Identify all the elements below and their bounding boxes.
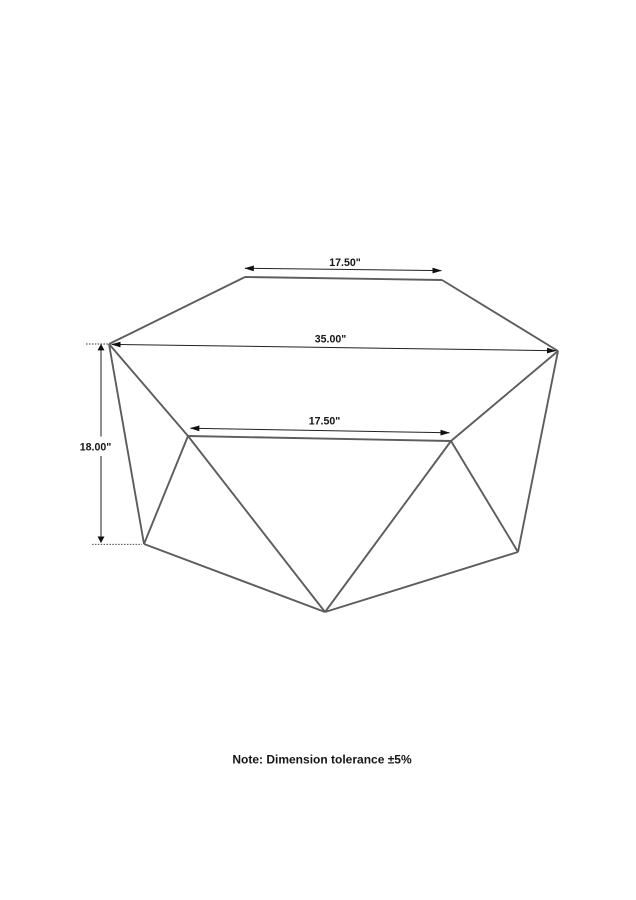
- svg-text:18.00": 18.00": [80, 442, 112, 454]
- svg-text:17.50": 17.50": [309, 416, 341, 428]
- svg-text:35.00": 35.00": [315, 334, 347, 346]
- svg-text:Note: Dimension tolerance ±5%: Note: Dimension tolerance ±5%: [232, 753, 412, 767]
- svg-text:17.50": 17.50": [329, 257, 361, 269]
